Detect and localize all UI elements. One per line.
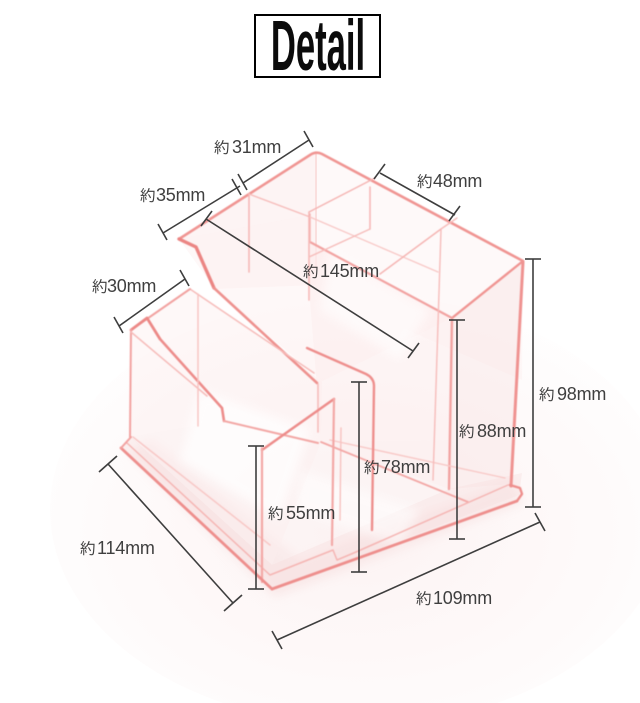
svg-text:Detail: Detail xyxy=(271,5,365,85)
svg-text:30mm: 30mm xyxy=(107,276,156,296)
svg-text:78mm: 78mm xyxy=(381,457,430,477)
svg-text:98mm: 98mm xyxy=(557,384,606,404)
svg-text:31mm: 31mm xyxy=(232,137,281,157)
svg-text:145mm: 145mm xyxy=(320,261,379,281)
svg-text:114mm: 114mm xyxy=(97,538,155,558)
svg-text:109mm: 109mm xyxy=(433,588,492,608)
svg-text:88mm: 88mm xyxy=(477,421,526,441)
svg-text:55mm: 55mm xyxy=(286,503,335,523)
svg-text:48mm: 48mm xyxy=(433,171,482,191)
svg-text:35mm: 35mm xyxy=(156,185,205,205)
